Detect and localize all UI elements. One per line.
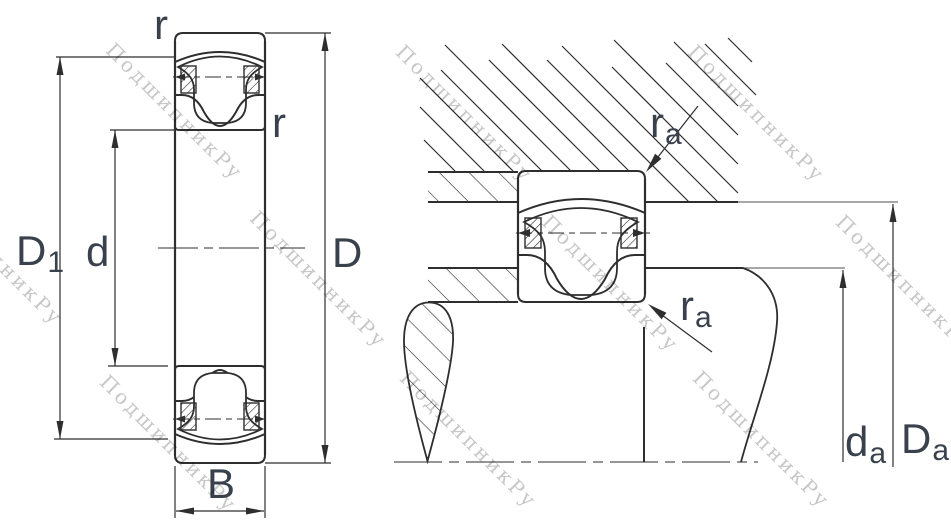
label-D1: D1 [16,228,63,274]
label-r-side: r [272,100,286,146]
technical-drawing-page: r r D1 d D B ra ra da Da ПодшипникРу Под… [0,0,951,532]
dimension-Da [890,204,897,467]
label-Da: Da [901,416,948,462]
left-view-bearing-section [158,33,305,463]
label-da: da [845,419,885,465]
cage-arrow-icon [633,229,645,237]
cage-arrow-icon [518,229,530,237]
right-view-mounting-section [394,38,898,462]
housing-shoulder-left [428,172,518,202]
shaft-web-section [404,303,453,462]
shaft-shoulder-left [428,268,518,302]
bearing-drawing [0,0,951,532]
cage-arrow-icon [255,416,265,423]
label-D: D [332,230,362,276]
outer-ring-section [518,171,645,213]
label-d: d [86,229,109,275]
abutment-profile-curve [741,268,777,462]
label-ra-top: ra [650,100,681,146]
label-B: B [207,461,235,507]
cage-arrow-icon [255,74,265,81]
label-r-top: r [154,2,168,48]
label-ra-bottom: ra [680,283,711,329]
cage-arrow-icon [175,416,185,423]
cage-arrow-icon [175,74,185,81]
